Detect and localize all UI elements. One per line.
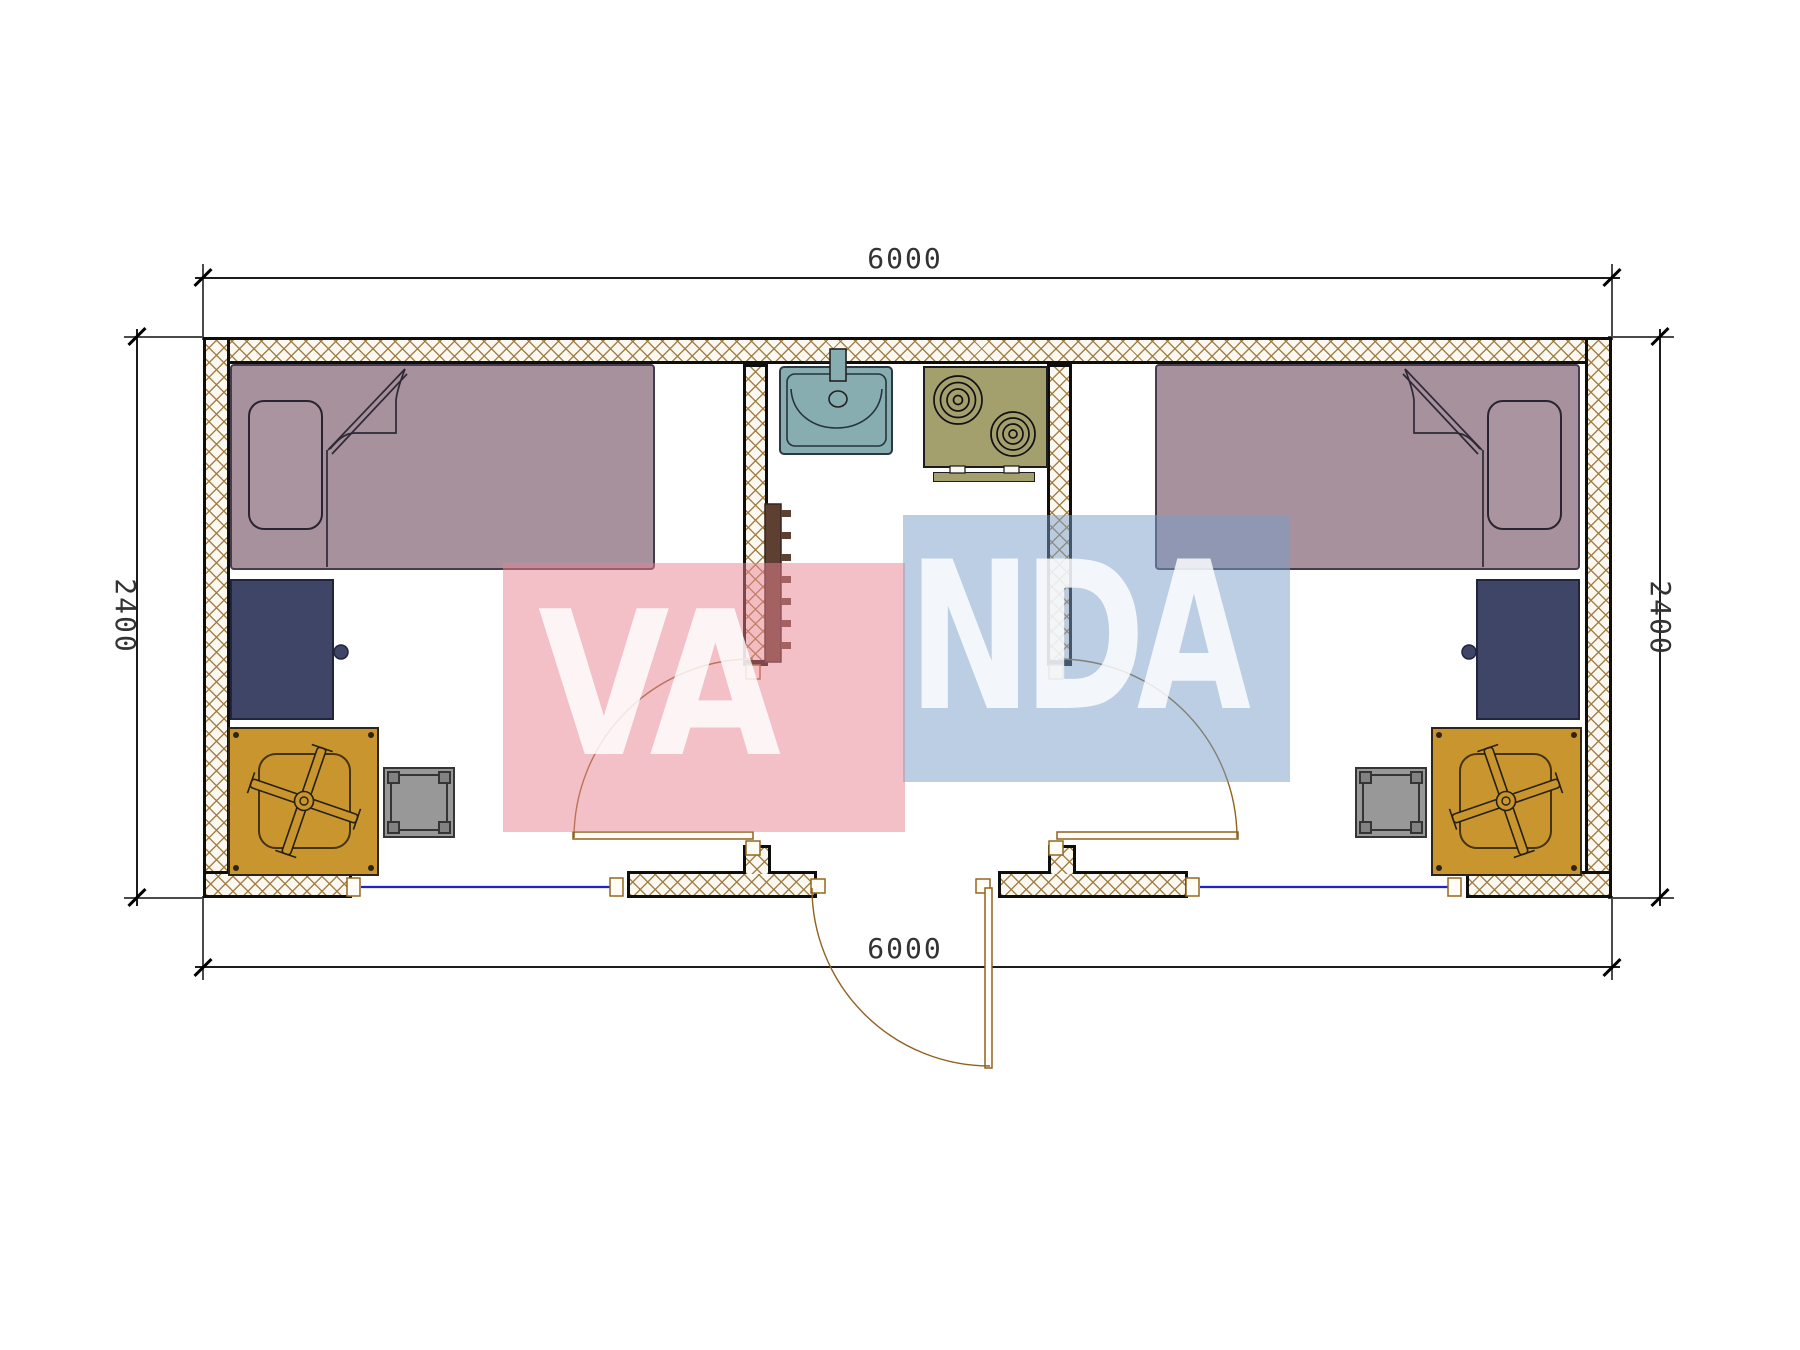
stool-leg [438,821,451,834]
window-sill [1448,878,1461,896]
bottom-wall-right-mid [998,871,1188,898]
bottom-wall-left-stub [743,845,771,874]
bottom-wall-right-stub [1048,845,1076,874]
door-jamb [976,879,990,893]
rack-hook [781,510,791,517]
stool-leg [1410,771,1423,784]
door-jamb [746,665,760,679]
stool-leg [1359,771,1372,784]
desk-left [230,579,334,720]
door-leaf-right [1057,832,1238,839]
stool-leg [1410,821,1423,834]
door-leaf-left [573,832,753,839]
watermark-pink-box [503,563,905,832]
wall-rack [765,504,791,662]
rack-hook [781,532,791,539]
partition-right [1047,364,1072,666]
top-wall [203,337,1612,364]
door-jamb [1049,665,1063,679]
window-sill [610,878,623,896]
door-swing-right [1058,659,1237,838]
stove [923,366,1048,468]
dim-label-top: 6000 [840,244,970,274]
stove-base [933,472,1035,482]
floor-plan-canvas: 6000 6000 2400 2400 [0,0,1800,1350]
desk-right [1476,579,1580,720]
extension-line [1608,336,1674,338]
stool-right [1355,767,1427,838]
door-swing-entrance [812,888,990,1066]
dim-label-right: 2400 [1645,553,1675,683]
rack-hook [781,554,791,561]
sink [779,366,893,455]
watermark-text-left: VA [538,586,773,786]
rack-hook [781,620,791,627]
stool-leg [1359,821,1372,834]
door-jambs [746,665,1063,893]
pillow-right [1487,400,1562,530]
dim-line-top [195,277,1620,279]
window-sills [347,878,1461,896]
chair-left-seat [258,753,351,849]
extension-line [1608,897,1674,899]
rack-hook [781,642,791,649]
desk-right-knob [1462,645,1476,659]
desk-left-knob [334,645,348,659]
partition-left [743,364,768,666]
dim-label-bottom: 6000 [840,934,970,964]
door-leaf-entrance [985,888,992,1068]
rack-hook [781,598,791,605]
stool-leg [387,821,400,834]
right-wall [1585,337,1612,898]
pillow-left [248,400,323,530]
left-wall [203,337,230,898]
rack-hook [781,576,791,583]
chair-right-seat [1459,753,1552,849]
door-swing-left [574,659,753,838]
stool-leg [438,771,451,784]
bottom-wall-left-mid [627,871,817,898]
dim-label-left: 2400 [110,551,140,681]
stool-leg [387,771,400,784]
dim-line-bottom [195,966,1620,968]
stool-left [383,767,455,838]
